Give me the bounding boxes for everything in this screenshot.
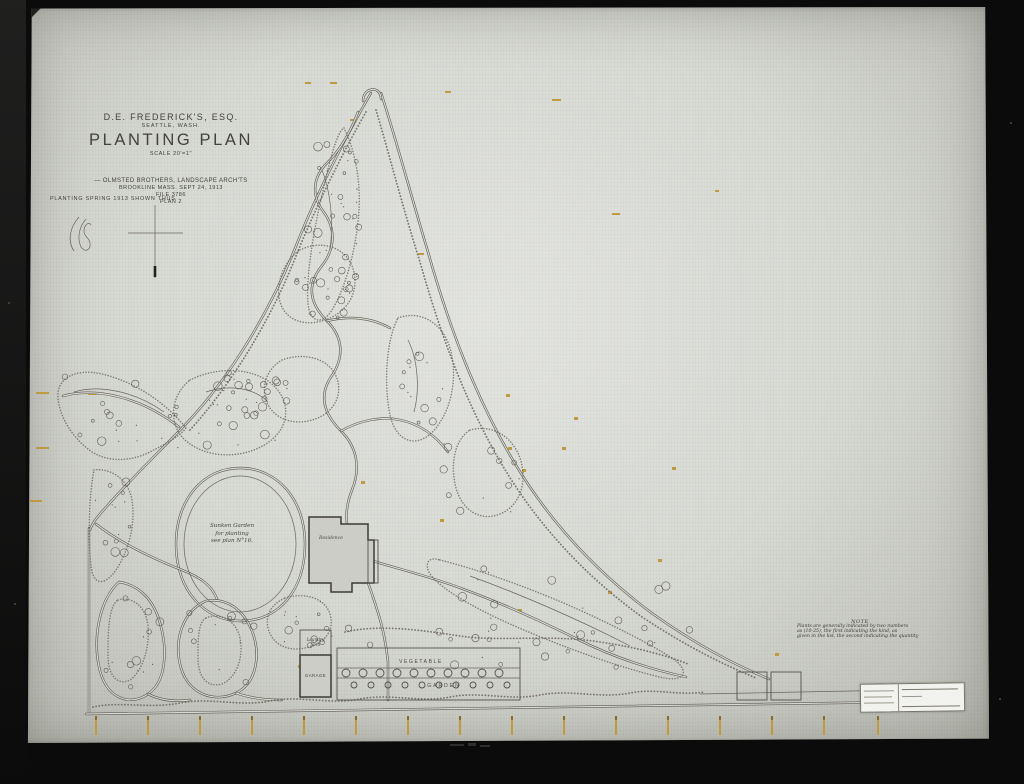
- pencil-mark: [450, 744, 464, 746]
- residence-label: Residence: [319, 536, 343, 541]
- sunken-garden-label: Sunken Garden for planting see plan N°16…: [196, 523, 268, 546]
- client-name: D.E. FREDERICK'S, ESQ.: [85, 112, 257, 122]
- amber-mark: [330, 82, 337, 84]
- amber-mark: [440, 519, 444, 522]
- dust-speck: [999, 698, 1001, 700]
- amber-mark: [88, 393, 97, 395]
- vegetable-label: VEGETABLE: [388, 659, 454, 665]
- garage-label: GARAGE: [300, 673, 331, 678]
- pencil-mark: [480, 745, 490, 747]
- amber-mark: [608, 591, 612, 594]
- amber-mark: [574, 417, 578, 420]
- amber-tick-cap: [303, 716, 305, 720]
- amber-mark: [672, 467, 676, 470]
- laundry-yard-label: Laundry Yard: [302, 637, 329, 647]
- scanned-plan-photo: { "colors": { "paper": "#d7d9d3", "ink":…: [0, 0, 1024, 784]
- amber-mark: [298, 665, 302, 668]
- amber-mark: [445, 91, 451, 93]
- amber-tick-cap: [147, 716, 149, 720]
- amber-mark: [612, 213, 620, 215]
- archive-stamp: [860, 682, 965, 712]
- amber-tick-cap: [615, 716, 617, 720]
- note-block: NOTE Plants are generally indicated by t…: [797, 619, 923, 640]
- title-block: D.E. FREDERICK'S, ESQ. SEATTLE, WASH. PL…: [85, 112, 257, 205]
- firm-name: — OLMSTED BROTHERS, LANDSCAPE ARCH'TS: [85, 178, 257, 184]
- mat-streak: [0, 0, 26, 784]
- amber-tick-cap: [95, 716, 97, 720]
- amber-mark: [36, 392, 49, 394]
- amber-tick-cap: [667, 716, 669, 720]
- client-city: SEATTLE, WASH.: [85, 123, 257, 129]
- amber-mark: [36, 447, 49, 449]
- amber-mark: [658, 559, 662, 562]
- amber-mark: [552, 99, 561, 101]
- planting-legend-note: PLANTING SPRING 1913 SHOWN THUS: [50, 196, 176, 202]
- amber-tick-cap: [719, 716, 721, 720]
- dust-speck: [1010, 122, 1012, 124]
- amber-mark: [361, 481, 365, 484]
- amber-mark: [518, 609, 522, 612]
- amber-tick-cap: [511, 716, 513, 720]
- dust-speck: [8, 302, 10, 304]
- amber-tick-cap: [823, 716, 825, 720]
- amber-mark: [30, 500, 42, 502]
- amber-tick-cap: [771, 716, 773, 720]
- amber-mark: [715, 190, 719, 192]
- amber-mark: [508, 447, 512, 450]
- amber-mark: [522, 469, 526, 472]
- stamp-divider: [898, 684, 899, 711]
- amber-tick-cap: [407, 716, 409, 720]
- dust-speck: [14, 603, 16, 605]
- drawing-title: PLANTING PLAN: [85, 131, 257, 150]
- amber-tick-cap: [251, 716, 253, 720]
- amber-tick-cap: [355, 716, 357, 720]
- pencil-mark: [468, 743, 476, 746]
- amber-mark: [506, 394, 510, 397]
- note-line: given in the list, the second indicating…: [797, 635, 923, 640]
- amber-tick-cap: [459, 716, 461, 720]
- amber-tick-cap: [877, 716, 879, 720]
- amber-mark: [305, 82, 311, 84]
- amber-mark: [775, 653, 779, 656]
- amber-mark: [418, 253, 424, 255]
- firm-address-date: BROOKLINE MASS. SEPT 24, 1913: [85, 185, 257, 191]
- garden-label: GARDEN: [416, 683, 472, 689]
- amber-tick-cap: [563, 716, 565, 720]
- amber-tick-cap: [199, 716, 201, 720]
- drawing-scale: SCALE 20'=1": [85, 151, 257, 157]
- amber-mark: [562, 447, 566, 450]
- amber-mark: [350, 119, 356, 121]
